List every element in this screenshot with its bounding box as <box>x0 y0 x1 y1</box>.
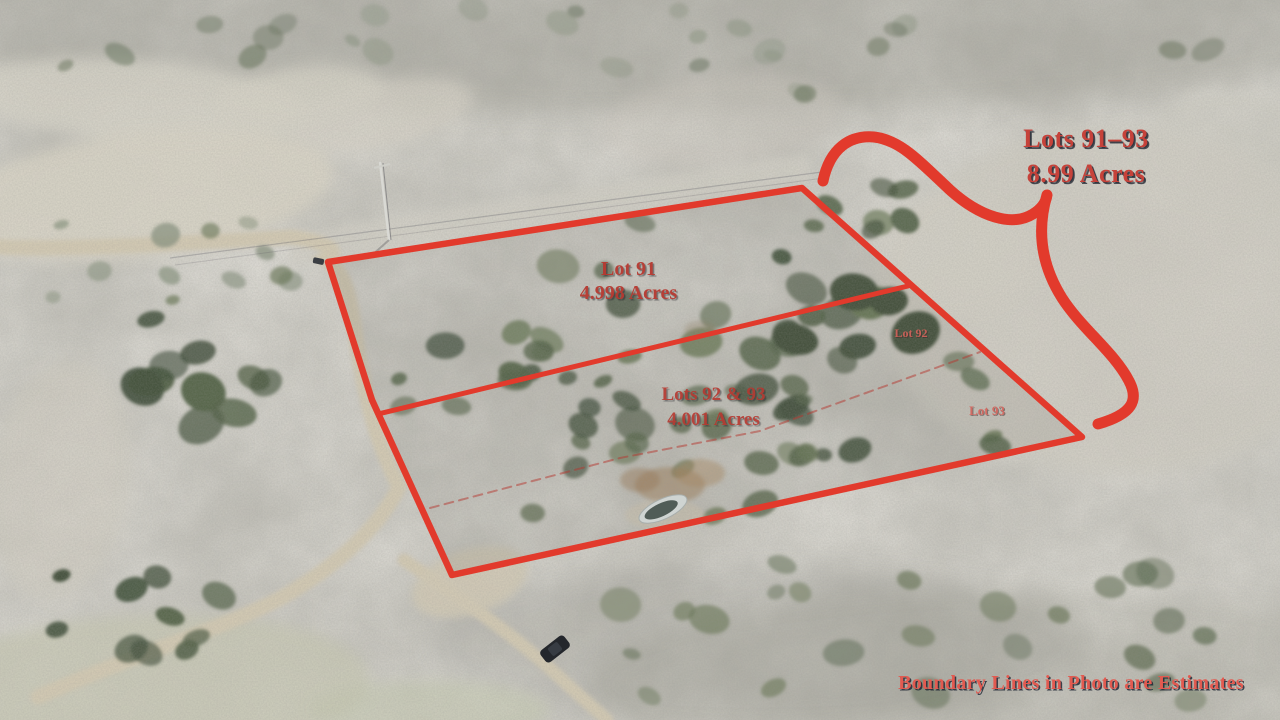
photo-grain-overlay <box>0 0 1280 720</box>
aerial-photo: Lots 91–93 8.99 Acres Lot 91 4.998 Acres… <box>0 0 1280 720</box>
aerial-photo-canvas <box>0 0 1280 720</box>
